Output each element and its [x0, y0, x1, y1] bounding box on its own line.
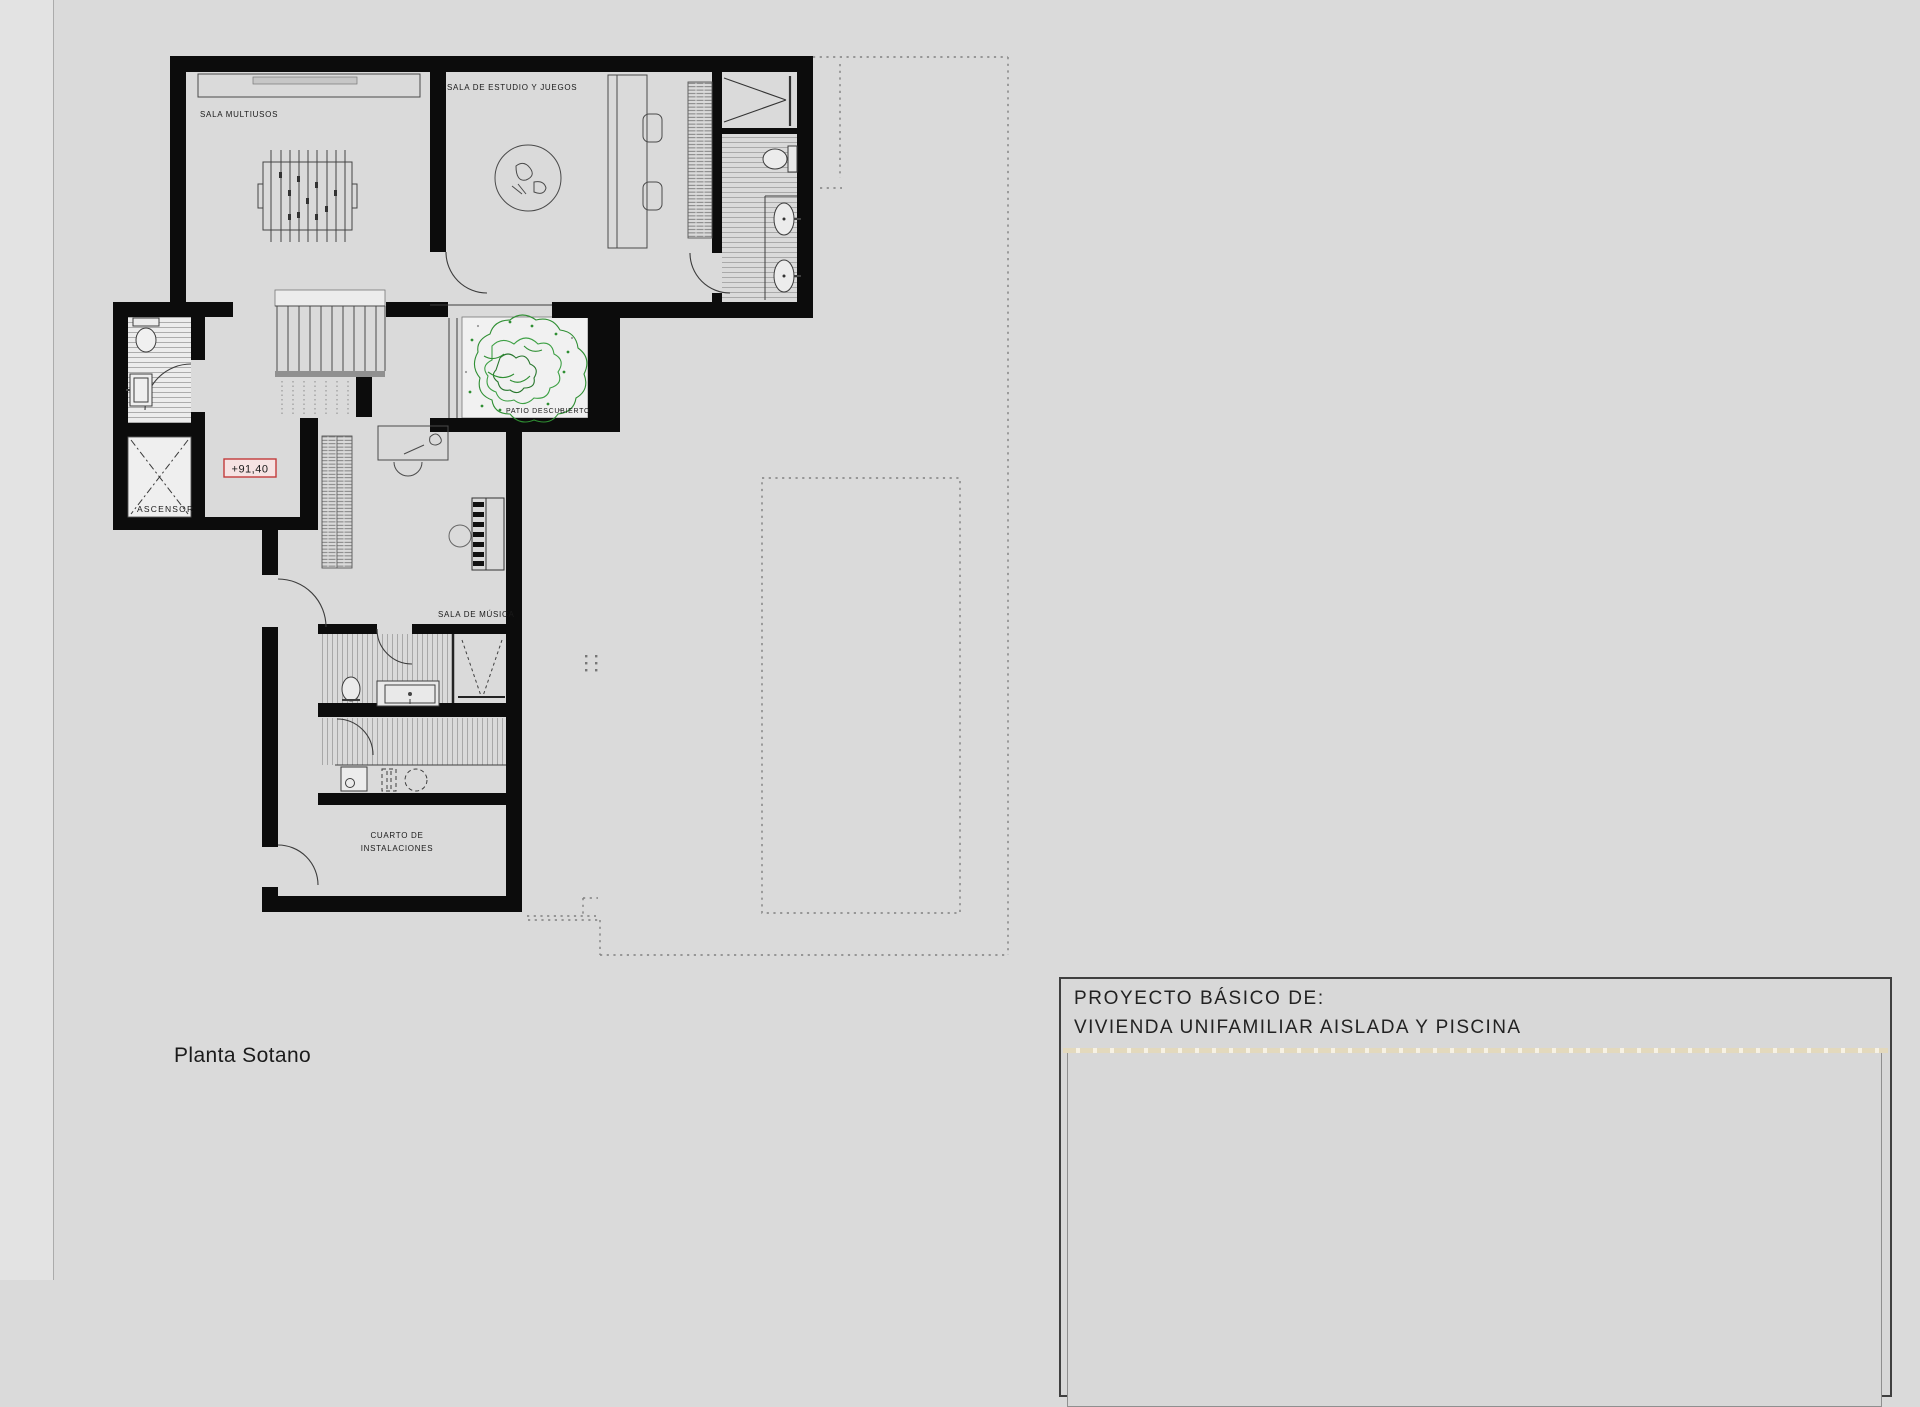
- wardrobe: [724, 76, 790, 126]
- room-label-patio: PATIO DESCUBIERTO: [506, 408, 590, 415]
- corridor-desk: [378, 426, 448, 476]
- piano: [449, 498, 504, 570]
- title-block-panel: [1067, 1053, 1882, 1407]
- elevator: ASCENSOR: [128, 437, 194, 517]
- room-label-instalaciones-2: INSTALACIONES: [361, 844, 434, 853]
- laundry-fixtures: [335, 765, 506, 791]
- shelf-strip-estudio: [688, 82, 712, 238]
- room-label-instalaciones-1: CUARTO DE: [370, 831, 423, 840]
- paving-marks: [585, 655, 597, 671]
- room-label-estudio: SALA DE ESTUDIO Y JUEGOS: [447, 83, 577, 92]
- round-table: [495, 145, 561, 211]
- room-label-musica: SALA DE MÚSICA: [438, 610, 515, 619]
- room-label-multiusos: SALA MULTIUSOS: [200, 110, 278, 119]
- title-block-project: VIVIENDA UNIFAMILIAR AISLADA Y PISCINA: [1074, 1017, 1521, 1039]
- foosball-table: [258, 150, 357, 242]
- study-desk: [608, 75, 662, 248]
- title-block: PROYECTO BÁSICO DE: VIVIENDA UNIFAMILIAR…: [1059, 977, 1892, 1397]
- plan-caption: Planta Sotano: [174, 1044, 311, 1068]
- room-label-ascensor: ASCENSOR: [137, 504, 194, 514]
- elevation-marker: +91,40: [224, 459, 276, 477]
- musica-shelf: [322, 436, 352, 568]
- elevation-value: +91,40: [232, 464, 269, 476]
- pool-outline-dotted: [762, 478, 960, 913]
- drawing-sheet: ASCENSOR +91,40: [0, 0, 1920, 1280]
- title-block-prefix: PROYECTO BÁSICO DE:: [1074, 988, 1325, 1010]
- door-arcs: [145, 252, 730, 885]
- multiusos-counter: [198, 74, 420, 97]
